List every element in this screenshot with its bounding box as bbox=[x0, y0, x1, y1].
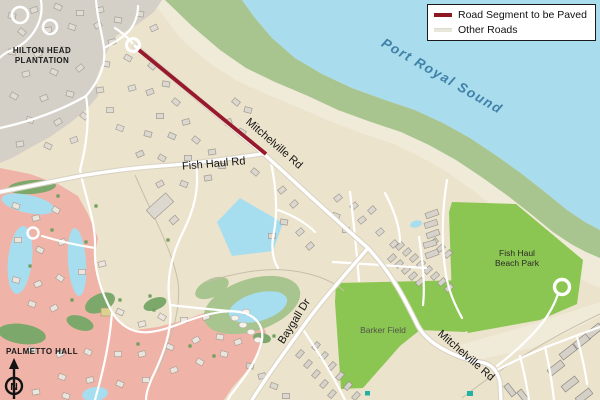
plantation-label-line2: PLANTATION bbox=[15, 56, 69, 65]
barker-field-label: Barker Field bbox=[360, 325, 406, 335]
beach-park-label-line2: Beach Park bbox=[495, 258, 540, 268]
paved-swatch-icon bbox=[434, 13, 452, 17]
palmetto-label: PALMETTO HALL bbox=[6, 347, 78, 356]
legend: Road Segment to be Paved Other Roads bbox=[427, 4, 596, 41]
north-label: N bbox=[10, 381, 18, 393]
legend-item-other: Other Roads bbox=[434, 24, 587, 36]
other-roads-swatch-icon bbox=[434, 28, 452, 32]
legend-item-paved-label: Road Segment to be Paved bbox=[458, 9, 587, 21]
map-viewport: Port Royal Sound HILTON HEAD PLANTATION … bbox=[0, 0, 600, 400]
legend-item-other-label: Other Roads bbox=[458, 24, 518, 36]
beach-park-label-line1: Fish Haul bbox=[499, 248, 535, 258]
plantation-label-line1: HILTON HEAD bbox=[13, 46, 71, 55]
map-image: Port Royal Sound HILTON HEAD PLANTATION … bbox=[0, 0, 600, 400]
legend-item-paved: Road Segment to be Paved bbox=[434, 9, 587, 21]
